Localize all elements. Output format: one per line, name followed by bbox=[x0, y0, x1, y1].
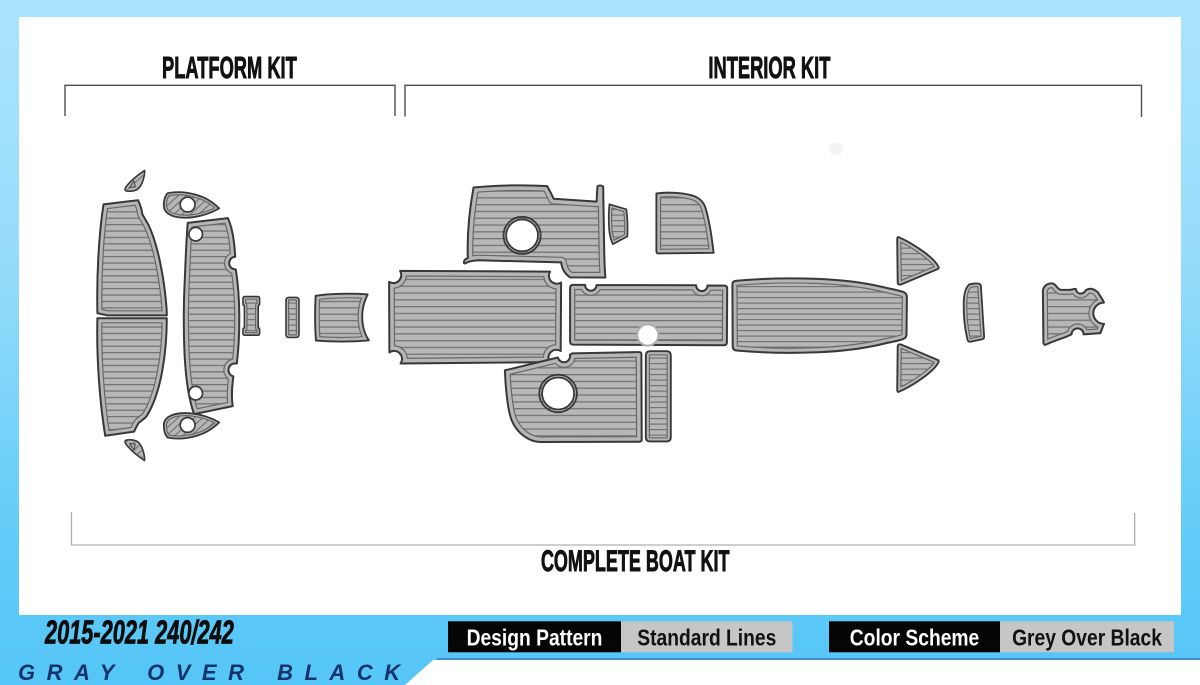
svg-text:Grey Over Black: Grey Over Black bbox=[1012, 625, 1162, 651]
svg-text:GRAY OVER BLACK: GRAY OVER BLACK bbox=[18, 660, 412, 685]
svg-text:Color Scheme: Color Scheme bbox=[850, 625, 980, 651]
svg-text:Standard Lines: Standard Lines bbox=[637, 625, 776, 651]
svg-text:INTERIOR KIT: INTERIOR KIT bbox=[708, 51, 830, 85]
svg-text:PLATFORM KIT: PLATFORM KIT bbox=[162, 51, 297, 85]
svg-text:Design Pattern: Design Pattern bbox=[467, 625, 603, 651]
svg-text:COMPLETE BOAT KIT: COMPLETE BOAT KIT bbox=[541, 546, 730, 579]
svg-text:2015-2021 240/242: 2015-2021 240/242 bbox=[44, 614, 234, 651]
